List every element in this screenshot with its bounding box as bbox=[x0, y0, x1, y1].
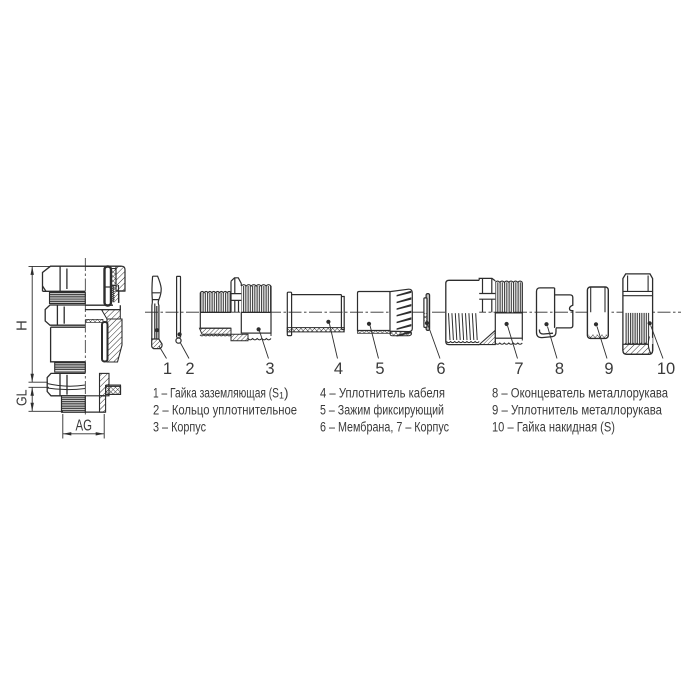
svg-text:9: 9 bbox=[604, 360, 613, 378]
svg-text:6 – Мембрана, 7 – Корпус: 6 – Мембрана, 7 – Корпус bbox=[320, 420, 449, 435]
svg-text:9 – Уплотнитель металлорукава: 9 – Уплотнитель металлорукава bbox=[492, 403, 662, 418]
svg-text:2 – Кольцо уплотнительное: 2 – Кольцо уплотнительное bbox=[153, 403, 297, 418]
svg-text:6: 6 bbox=[436, 360, 445, 378]
svg-text:GL: GL bbox=[15, 390, 31, 407]
svg-text:5 – Зажим фиксирующий: 5 – Зажим фиксирующий bbox=[320, 403, 444, 418]
svg-text:8 – Оконцеватель металлорукава: 8 – Оконцеватель металлорукава bbox=[492, 386, 668, 401]
svg-text:3: 3 bbox=[265, 360, 274, 378]
svg-text:10 – Гайка накидная (S): 10 – Гайка накидная (S) bbox=[492, 420, 615, 435]
svg-text:1: 1 bbox=[163, 360, 172, 378]
svg-text:AG: AG bbox=[76, 418, 93, 435]
svg-text:H: H bbox=[14, 320, 31, 331]
svg-text:4 – Уплотнитель кабеля: 4 – Уплотнитель кабеля bbox=[320, 386, 445, 401]
svg-text:3 – Корпус: 3 – Корпус bbox=[153, 420, 206, 435]
svg-text:1 – Гайка заземляющая (S: 1 – Гайка заземляющая (S bbox=[153, 386, 279, 401]
svg-text:8: 8 bbox=[555, 360, 564, 378]
svg-text:): ) bbox=[284, 386, 289, 401]
svg-text:7: 7 bbox=[514, 360, 523, 378]
svg-text:10: 10 bbox=[657, 360, 675, 378]
svg-text:5: 5 bbox=[375, 360, 384, 378]
svg-text:2: 2 bbox=[185, 360, 194, 378]
svg-text:4: 4 bbox=[334, 360, 343, 378]
